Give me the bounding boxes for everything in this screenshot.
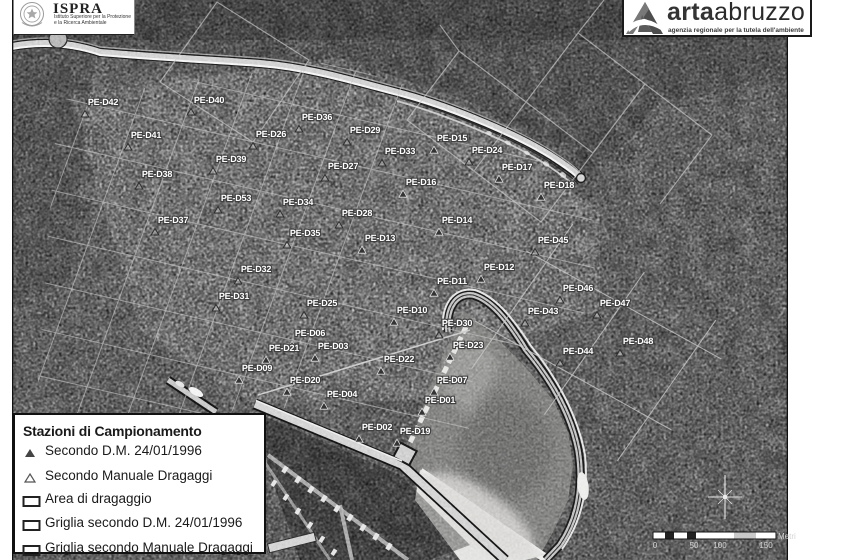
svg-text:PE-D03: PE-D03 <box>318 341 349 351</box>
svg-text:PE-D12: PE-D12 <box>484 262 515 272</box>
svg-text:PE-D26: PE-D26 <box>256 129 287 139</box>
svg-text:100: 100 <box>713 541 727 550</box>
svg-text:PE-D40: PE-D40 <box>194 95 225 105</box>
svg-text:PE-D21: PE-D21 <box>269 343 300 353</box>
svg-text:PE-D07: PE-D07 <box>437 375 468 385</box>
svg-text:PE-D48: PE-D48 <box>623 336 654 346</box>
svg-text:PE-D29: PE-D29 <box>350 125 381 135</box>
svg-text:PE-D45: PE-D45 <box>538 235 569 245</box>
svg-text:50: 50 <box>690 541 699 550</box>
svg-text:PE-D42: PE-D42 <box>88 97 119 107</box>
svg-text:PE-D37: PE-D37 <box>158 215 189 225</box>
svg-text:PE-D11: PE-D11 <box>437 276 467 286</box>
svg-text:PE-D36: PE-D36 <box>302 112 333 122</box>
svg-text:Metri: Metri <box>778 532 796 541</box>
svg-text:PE-D04: PE-D04 <box>327 389 358 399</box>
svg-text:PE-D43: PE-D43 <box>528 306 559 316</box>
svg-text:PE-D27: PE-D27 <box>328 161 359 171</box>
svg-text:PE-D38: PE-D38 <box>142 169 173 179</box>
svg-text:0: 0 <box>653 541 658 550</box>
svg-text:PE-D18: PE-D18 <box>544 180 575 190</box>
svg-text:PE-D25: PE-D25 <box>307 298 338 308</box>
svg-text:150: 150 <box>759 541 773 550</box>
svg-text:PE-D01: PE-D01 <box>425 395 456 405</box>
svg-text:PE-D28: PE-D28 <box>342 208 373 218</box>
svg-text:PE-D17: PE-D17 <box>502 162 533 172</box>
svg-text:PE-D16: PE-D16 <box>406 177 437 187</box>
svg-text:PE-D23: PE-D23 <box>453 340 484 350</box>
svg-text:PE-D30: PE-D30 <box>442 318 473 328</box>
svg-text:PE-D35: PE-D35 <box>290 228 321 238</box>
svg-text:PE-D14: PE-D14 <box>442 215 473 225</box>
svg-text:PE-D10: PE-D10 <box>397 305 428 315</box>
svg-text:PE-D46: PE-D46 <box>563 283 594 293</box>
svg-text:PE-D47: PE-D47 <box>600 298 631 308</box>
svg-text:PE-D34: PE-D34 <box>283 197 314 207</box>
svg-text:PE-D22: PE-D22 <box>384 354 415 364</box>
svg-text:PE-D15: PE-D15 <box>437 133 468 143</box>
svg-text:PE-D19: PE-D19 <box>400 426 431 436</box>
svg-text:PE-D41: PE-D41 <box>131 130 162 140</box>
svg-text:PE-D24: PE-D24 <box>472 145 503 155</box>
svg-text:PE-D53: PE-D53 <box>221 193 252 203</box>
svg-text:PE-D20: PE-D20 <box>290 375 321 385</box>
svg-text:PE-D33: PE-D33 <box>385 146 416 156</box>
svg-text:PE-D13: PE-D13 <box>365 233 396 243</box>
svg-text:PE-D02: PE-D02 <box>362 422 393 432</box>
svg-text:PE-D39: PE-D39 <box>216 154 247 164</box>
svg-text:PE-D06: PE-D06 <box>295 328 326 338</box>
svg-text:PE-D31: PE-D31 <box>219 291 250 301</box>
svg-text:PE-D09: PE-D09 <box>242 363 273 373</box>
svg-text:PE-D32: PE-D32 <box>241 264 272 274</box>
svg-text:PE-D44: PE-D44 <box>563 346 594 356</box>
